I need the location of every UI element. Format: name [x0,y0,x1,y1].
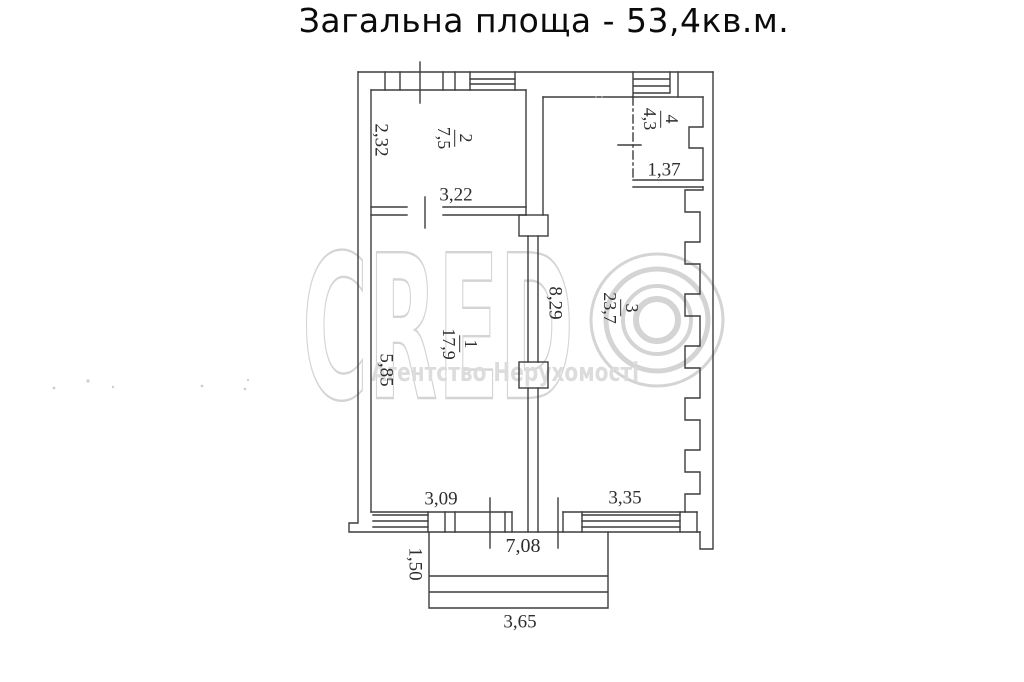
scan-artifacts [53,379,250,390]
room4-area: 4,3 [640,108,661,131]
room1-number: 1 [460,336,482,353]
dim-room3-width: 3,35 [608,489,641,508]
room4-label: 4 4,3 [640,108,682,131]
room3-label: 3 23,7 [600,292,642,324]
dim-room2-width: 3,22 [439,186,472,205]
window-top-left [470,79,515,84]
floor-plan-page: Загальна площа - 53,4кв.м. CRED Агентств… [0,0,1024,682]
room3-number: 3 [621,300,643,317]
dim-room4-width: 1,37 [647,161,680,180]
room3-area: 23,7 [600,292,621,324]
room1-area: 17,9 [439,328,460,360]
dim-room2-height: 2,32 [372,123,391,156]
room4-bottom-wall [633,180,703,187]
dim-balcony-depth: 1,50 [406,547,425,580]
top-wall-piers [385,72,515,90]
room4-top-window [633,72,678,97]
room2-right-wall [526,90,543,215]
room2-label: 2 7,5 [434,127,476,150]
watermark: CRED Агентство Нерухомості [302,213,723,446]
dim-balcony-width: 3,65 [503,613,536,632]
window-bottom-left [373,515,428,527]
room2-area: 7,5 [434,127,455,150]
watermark-subtitle-text: Агентство Нерухомості [371,358,639,388]
room4-number: 4 [661,111,683,128]
room2-number: 2 [455,130,477,147]
window-bottom-right [582,515,680,527]
dim-bottom-total-width: 7,08 [506,536,541,556]
dim-room1-height: 5,85 [377,353,396,386]
room1-label: 1 17,9 [439,328,481,360]
floor-plan-drawing: CRED Агентство Нерухомості [0,0,1024,682]
dim-room3-height: 8,29 [546,286,565,319]
dim-room1-width: 3,09 [424,490,457,509]
room4-right-wall-notch [689,97,703,180]
